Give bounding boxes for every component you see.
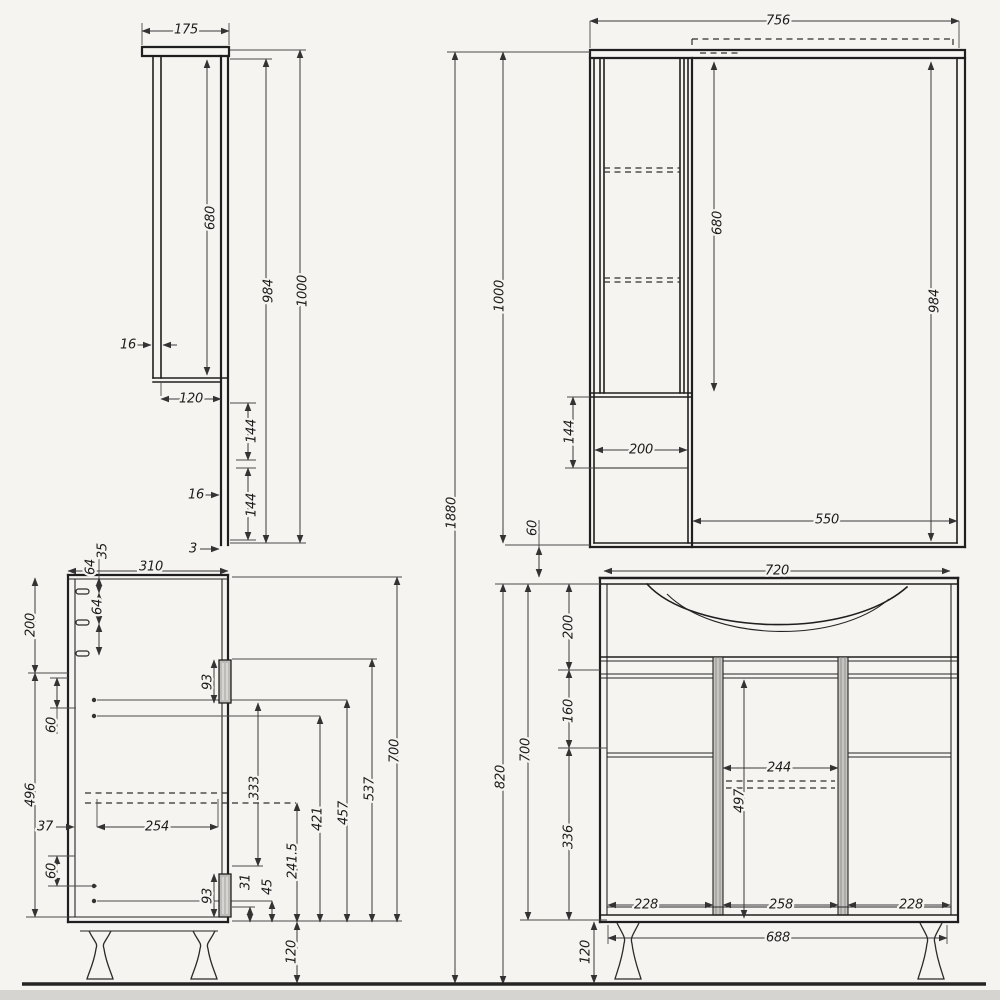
dim-label-vs-depth: 310 xyxy=(139,560,163,575)
vanity-side-view xyxy=(26,549,402,983)
dim-label-vf-door-right: 228 xyxy=(899,898,923,913)
vanity-front-leg-right xyxy=(918,923,944,979)
dim-label-mf-shelf-gap: 144 xyxy=(563,420,578,444)
dim-label-vs-leg-height: 120 xyxy=(285,940,300,964)
dim-label-vs-top-section: 200 xyxy=(24,613,39,637)
dim-label-ms-top-depth: 175 xyxy=(174,23,198,38)
dim-label-vs-h457: 457 xyxy=(337,800,352,825)
dim-label-vs-gap-lower: 60 xyxy=(45,863,60,879)
dim-label-vs-hinge-upper: 93 xyxy=(201,674,216,690)
mirror-cabinet-front-view xyxy=(565,21,965,547)
dim-label-vs-front-offset: 37 xyxy=(37,820,54,835)
dim-label-ov-total-height: 1880 xyxy=(445,497,460,529)
dim-label-ms-inner-height: 680 xyxy=(204,206,219,230)
dim-label-vs-h537: 537 xyxy=(363,776,378,801)
dim-label-vs-peg-offset: 35 xyxy=(96,543,111,559)
sink-basin-outline xyxy=(647,584,907,625)
dim-label-ms-back-thickness: 16 xyxy=(188,488,204,503)
dim-label-vf-base-width: 688 xyxy=(766,931,790,946)
dim-label-ms-gap-upper: 144 xyxy=(245,419,260,443)
dim-label-vf-h497: 497 xyxy=(733,788,748,813)
dim-label-vf-drawer-width: 244 xyxy=(767,761,791,776)
dim-label-mf-inner-height: 680 xyxy=(711,211,726,235)
dim-label-mf-mirror-width: 550 xyxy=(815,513,839,528)
dim-label-ms-panel-thickness: 3 xyxy=(189,542,197,557)
dim-label-vf-total-height: 820 xyxy=(494,765,509,789)
dim-label-mf-height-no-top: 984 xyxy=(928,289,943,313)
dim-label-vs-h241-5: 241.5 xyxy=(286,843,301,879)
dim-label-vf-drawer-front: 258 xyxy=(769,898,793,913)
dim-label-mf-side-cabinet-width: 200 xyxy=(629,443,653,458)
dim-label-ms-height-no-top: 984 xyxy=(262,279,277,303)
dim-label-ms-gap-lower: 144 xyxy=(245,493,260,517)
vanity-side-leg-front xyxy=(87,931,113,979)
dim-label-mf-total-height: 1000 xyxy=(493,280,508,312)
dim-label-vf-bottom-section: 336 xyxy=(562,825,577,849)
technical-drawing-page: 1756801612014416144398410007566809841000… xyxy=(0,0,1000,1000)
dim-label-ms-door-thickness: 16 xyxy=(120,338,136,353)
dim-label-vs-slide-length: 254 xyxy=(145,820,169,835)
dim-label-vs-height: 700 xyxy=(388,739,403,763)
dim-label-vs-gap-upper: 60 xyxy=(45,717,60,733)
dim-label-vs-lower-section: 496 xyxy=(24,783,39,807)
dim-label-vf-door-left: 228 xyxy=(634,898,658,913)
dim-label-vs-peg-gap2: 64 xyxy=(91,599,106,615)
dim-label-vs-h31: 31 xyxy=(239,874,254,890)
dim-label-vs-h333: 333 xyxy=(248,776,263,800)
dim-label-vf-height: 700 xyxy=(519,738,534,762)
dim-label-ov-gap: 60 xyxy=(526,520,541,536)
dim-label-mf-total-width: 756 xyxy=(766,14,790,29)
furniture-dimension-drawing: 1756801612014416144398410007566809841000… xyxy=(0,0,1000,1000)
mirror-cabinet-side-view xyxy=(134,23,306,549)
right-pilaster xyxy=(838,657,848,915)
dim-label-vs-h421: 421 xyxy=(311,807,326,831)
dim-label-ms-body-depth: 120 xyxy=(179,392,203,407)
vanity-front-leg-left xyxy=(615,923,641,979)
dim-label-vf-top-section: 200 xyxy=(562,615,577,639)
dim-label-vs-hinge-lower: 93 xyxy=(201,888,216,904)
ground-line xyxy=(0,984,1000,1000)
dim-label-vf-mid-section: 160 xyxy=(562,699,577,723)
dim-label-ms-total-height: 1000 xyxy=(296,275,311,307)
left-pilaster xyxy=(713,657,723,915)
dim-label-vs-peg-gap1: 64 xyxy=(84,559,99,575)
vanity-side-leg-back xyxy=(191,931,217,979)
dim-label-vf-sink-width: 720 xyxy=(765,564,789,579)
dim-label-vf-leg-height: 120 xyxy=(579,940,594,964)
dim-label-vs-h45: 45 xyxy=(261,879,276,895)
